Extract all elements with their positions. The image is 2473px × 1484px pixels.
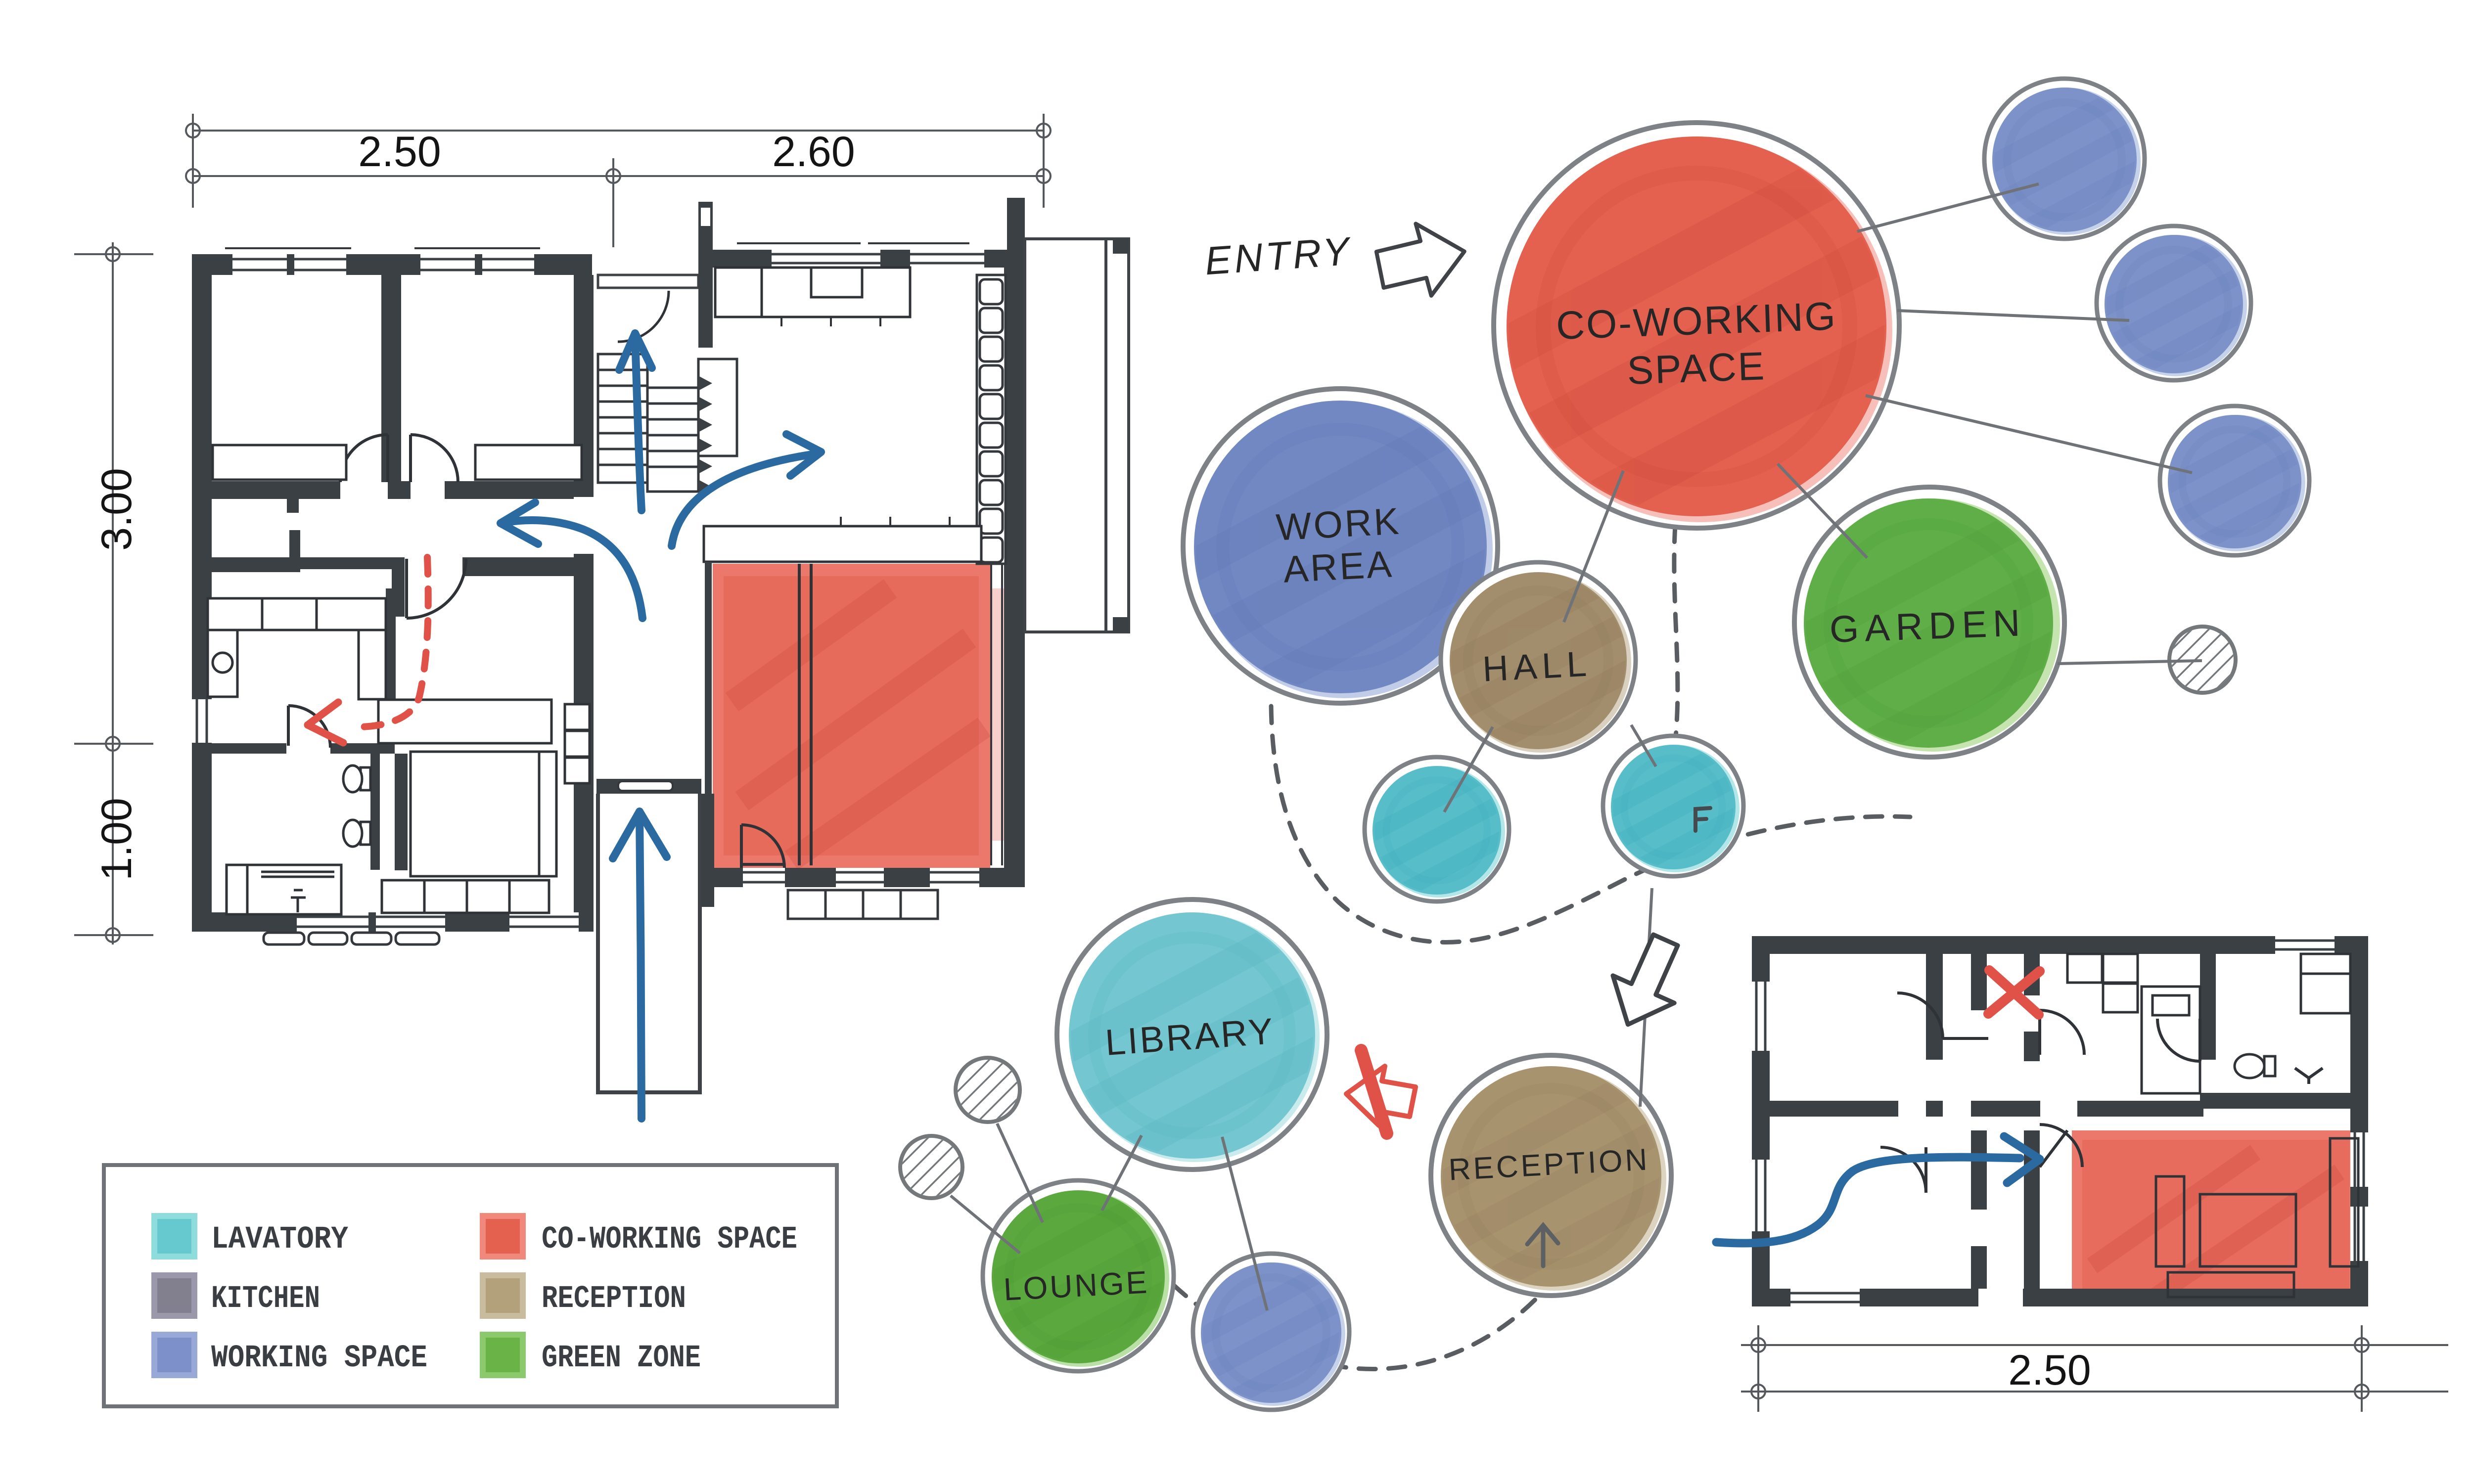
svg-text:GARDEN: GARDEN [1829, 602, 2027, 651]
svg-text:GREEN ZONE: GREEN ZONE [542, 1341, 701, 1376]
svg-text:HALL: HALL [1482, 644, 1593, 689]
svg-text:WORKING SPACE: WORKING SPACE [211, 1341, 427, 1376]
svg-text:3.00: 3.00 [93, 468, 140, 550]
svg-text:LAVATORY: LAVATORY [211, 1222, 349, 1258]
svg-text:KITCHEN: KITCHEN [211, 1281, 320, 1317]
svg-text:AREA: AREA [1282, 543, 1394, 591]
svg-text:SPACE: SPACE [1626, 344, 1766, 393]
svg-text:CO-WORKING SPACE: CO-WORKING SPACE [542, 1222, 797, 1258]
svg-text:2.60: 2.60 [772, 128, 855, 176]
svg-text:2.50: 2.50 [358, 128, 441, 176]
svg-text:2.50: 2.50 [2008, 1347, 2091, 1394]
svg-text:WORK: WORK [1275, 500, 1402, 548]
svg-text:LOUNGE: LOUNGE [1003, 1264, 1150, 1307]
svg-text:1.00: 1.00 [93, 798, 140, 880]
svg-text:RECEPTION: RECEPTION [542, 1281, 686, 1317]
